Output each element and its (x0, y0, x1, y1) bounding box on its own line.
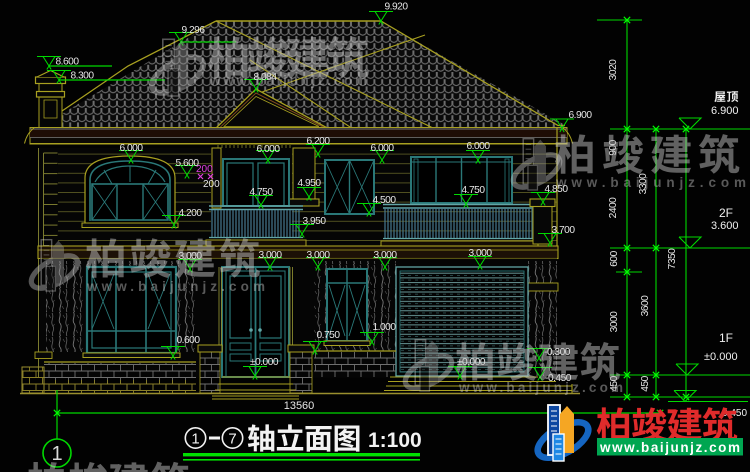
svg-text:4.500: 4.500 (373, 195, 397, 206)
svg-text:3.000: 3.000 (259, 250, 283, 261)
svg-text:6.900: 6.900 (711, 105, 739, 117)
svg-text:6.900: 6.900 (569, 110, 593, 121)
svg-text:0.600: 0.600 (177, 335, 201, 346)
svg-text:7: 7 (228, 431, 236, 448)
svg-text:600: 600 (609, 250, 620, 266)
svg-text:6.200: 6.200 (307, 136, 331, 147)
svg-text:0.750: 0.750 (317, 330, 341, 341)
svg-text:3.000: 3.000 (374, 250, 398, 261)
svg-text:6.000: 6.000 (371, 143, 395, 154)
svg-text:4.200: 4.200 (179, 208, 203, 219)
svg-text:1F: 1F (719, 331, 733, 345)
svg-text:200: 200 (196, 164, 213, 175)
svg-text:3.000: 3.000 (307, 250, 331, 261)
svg-text:4.950: 4.950 (298, 178, 322, 189)
svg-text:3.700: 3.700 (552, 225, 576, 236)
svg-text:6.000: 6.000 (467, 141, 491, 152)
svg-text:9.920: 9.920 (385, 2, 409, 13)
svg-text:3.000: 3.000 (469, 248, 493, 259)
svg-text:1.000: 1.000 (373, 322, 397, 333)
svg-text:200: 200 (203, 179, 220, 190)
svg-text:2F: 2F (719, 206, 733, 220)
svg-text:3.600: 3.600 (711, 220, 739, 232)
svg-text:3000: 3000 (609, 311, 620, 332)
svg-text:3020: 3020 (608, 59, 619, 80)
svg-text:7350: 7350 (667, 248, 678, 269)
svg-text:9.296: 9.296 (182, 25, 206, 36)
svg-text:1: 1 (51, 443, 62, 465)
svg-text:3.950: 3.950 (303, 216, 327, 227)
svg-text:2400: 2400 (608, 197, 619, 218)
svg-text:1:100: 1:100 (368, 429, 422, 452)
svg-text:1: 1 (191, 431, 199, 448)
svg-text:4.750: 4.750 (250, 187, 274, 198)
svg-text:3600: 3600 (640, 295, 651, 316)
svg-text:±0.000: ±0.000 (704, 351, 738, 363)
svg-text:6.000: 6.000 (120, 143, 144, 154)
svg-text:450: 450 (640, 375, 651, 391)
svg-text:6.000: 6.000 (257, 144, 281, 155)
svg-text:4.750: 4.750 (462, 185, 486, 196)
svg-text:±0.000: ±0.000 (250, 357, 279, 368)
svg-text:13560: 13560 (284, 400, 315, 412)
